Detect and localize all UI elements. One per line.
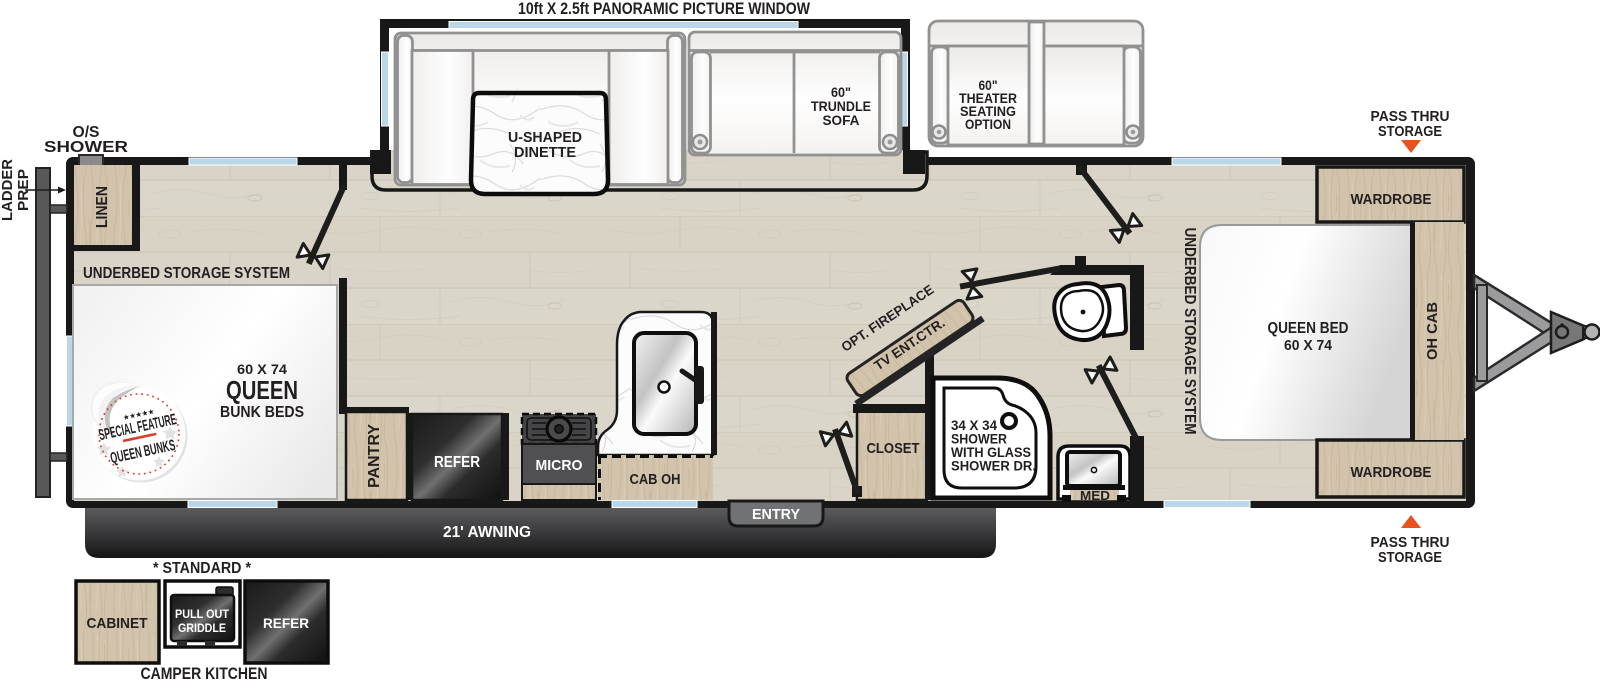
svg-text:LINEN: LINEN bbox=[94, 186, 111, 228]
svg-text:GRIDDLE: GRIDDLE bbox=[178, 623, 226, 635]
svg-text:10ft X 2.5ft PANORAMIC PICTURE: 10ft X 2.5ft PANORAMIC PICTURE WINDOW bbox=[518, 0, 811, 18]
svg-text:REFER: REFER bbox=[434, 454, 480, 471]
svg-text:OPTION: OPTION bbox=[965, 117, 1011, 132]
svg-text:SOFA: SOFA bbox=[823, 112, 860, 128]
svg-text:ENTRY: ENTRY bbox=[752, 507, 800, 523]
svg-text:WARDROBE: WARDROBE bbox=[1351, 192, 1432, 208]
svg-text:WARDROBE: WARDROBE bbox=[1351, 465, 1432, 481]
svg-text:QUEEN BED: QUEEN BED bbox=[1268, 320, 1349, 337]
svg-text:SHOWER DR.: SHOWER DR. bbox=[951, 459, 1036, 474]
svg-text:CABINET: CABINET bbox=[87, 616, 148, 632]
svg-text:QUEEN: QUEEN bbox=[226, 375, 298, 405]
svg-text:UNDERBED STORAGE SYSTEM: UNDERBED STORAGE SYSTEM bbox=[83, 265, 290, 282]
svg-text:SHOWER: SHOWER bbox=[44, 139, 129, 156]
svg-text:PANTRY: PANTRY bbox=[366, 423, 383, 488]
svg-text:MICRO: MICRO bbox=[536, 457, 583, 474]
svg-text:CLOSET: CLOSET bbox=[867, 440, 920, 457]
svg-text:STORAGE: STORAGE bbox=[1378, 549, 1442, 566]
svg-text:U-SHAPED: U-SHAPED bbox=[508, 130, 582, 146]
svg-text:LADDER: LADDER bbox=[0, 158, 16, 221]
svg-text:REFER: REFER bbox=[263, 615, 309, 631]
svg-text:UNDERBED STORAGE SYSTEM: UNDERBED STORAGE SYSTEM bbox=[1181, 228, 1198, 435]
svg-text:STORAGE: STORAGE bbox=[1378, 123, 1442, 140]
svg-text:* STANDARD *: * STANDARD * bbox=[153, 560, 252, 577]
svg-text:BUNK BEDS: BUNK BEDS bbox=[220, 404, 304, 421]
svg-text:60 X 74: 60 X 74 bbox=[1284, 338, 1332, 354]
svg-text:DINETTE: DINETTE bbox=[514, 145, 576, 161]
svg-text:21' AWNING: 21' AWNING bbox=[443, 524, 531, 541]
svg-text:CAB OH: CAB OH bbox=[630, 472, 681, 488]
svg-text:MED: MED bbox=[1080, 488, 1110, 503]
svg-text:OH CAB: OH CAB bbox=[1425, 302, 1441, 360]
svg-text:PULL OUT: PULL OUT bbox=[175, 609, 229, 621]
svg-text:CAMPER KITCHEN: CAMPER KITCHEN bbox=[141, 664, 268, 682]
